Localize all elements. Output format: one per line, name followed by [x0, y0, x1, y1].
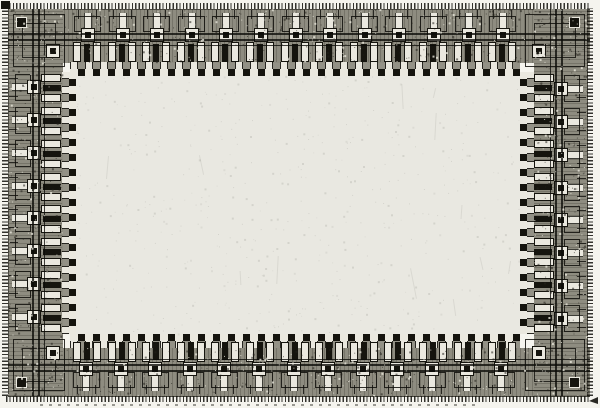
gate-bar [499, 44, 505, 62]
inner-comb-left [62, 72, 76, 334]
bus-line [555, 9, 557, 396]
io-cell [534, 235, 586, 269]
wire [304, 10, 305, 19]
io-cell [347, 10, 381, 62]
io-cell [485, 342, 519, 394]
io-cell [534, 301, 586, 335]
wire [493, 10, 494, 19]
io-cell [534, 104, 586, 138]
wire [577, 178, 586, 179]
contact-bar [534, 107, 554, 115]
wire [9, 209, 18, 210]
io-cell [312, 10, 346, 62]
bus-line [561, 9, 563, 396]
wire [373, 10, 374, 19]
contact-bar [534, 304, 554, 312]
gate-bar [153, 44, 159, 62]
contact-bar [534, 324, 554, 332]
bus-line [38, 9, 40, 396]
contact-block [569, 17, 580, 28]
io-cell [208, 342, 242, 394]
wire [9, 260, 18, 261]
gate-bar [257, 44, 263, 62]
bond-pad-core [536, 48, 542, 54]
metal-bars [70, 62, 520, 69]
bus-line [44, 9, 45, 396]
contact-bar [534, 140, 554, 148]
contact-bar [534, 225, 554, 233]
gate-bar [361, 342, 367, 360]
wire [407, 10, 408, 19]
wire [577, 309, 586, 310]
io-cell [416, 10, 450, 62]
wire [215, 385, 216, 394]
wire [338, 10, 339, 19]
wire [95, 385, 96, 394]
io-cell [70, 10, 104, 62]
bond-pad [46, 44, 60, 58]
io-cell [243, 342, 277, 394]
wire [216, 10, 217, 19]
wire [234, 10, 235, 19]
wire [577, 276, 586, 277]
wire [268, 385, 269, 394]
wire [9, 129, 18, 130]
gate-bar [119, 44, 125, 62]
io-cell [9, 202, 61, 236]
wire [181, 385, 182, 394]
gate-bar [430, 44, 436, 62]
wire [388, 385, 389, 394]
gate-bar [119, 342, 125, 360]
io-cell [9, 301, 61, 335]
bus-line [550, 9, 551, 396]
gate-bar [84, 44, 90, 62]
io-cell [534, 268, 586, 302]
corner-dark-mark [1, 1, 10, 9]
io-cell [347, 342, 381, 394]
wire [9, 162, 18, 163]
wire [9, 242, 18, 243]
wire [577, 130, 586, 131]
wire [458, 385, 459, 394]
io-cell [70, 342, 104, 394]
bus-line [8, 364, 590, 366]
contact-bar [534, 238, 554, 246]
contact-block [16, 377, 27, 388]
gate-bar [43, 151, 61, 157]
io-cell [174, 10, 208, 62]
io-cell [534, 71, 586, 105]
io-cell [9, 71, 61, 105]
wire [164, 385, 165, 394]
edge-tick-fringe-right [587, 8, 593, 396]
contact-bar [534, 193, 554, 201]
io-cell [243, 10, 277, 62]
wire [459, 10, 460, 19]
io-cell [105, 10, 139, 62]
print-artifact-line [40, 404, 480, 406]
wire [269, 10, 270, 19]
wire [303, 385, 304, 394]
wire [9, 195, 18, 196]
gate-bar [395, 44, 401, 62]
wire [577, 112, 586, 113]
contact-blocks [520, 72, 527, 334]
wire [389, 10, 390, 19]
contact-block [569, 377, 580, 388]
metal-bars [62, 72, 69, 334]
wire [577, 243, 586, 244]
contact-bar [534, 291, 554, 299]
gate-bar [465, 44, 471, 62]
wire [182, 10, 183, 19]
wire [78, 10, 79, 19]
wire [9, 96, 18, 97]
wire [9, 227, 18, 228]
wire [9, 326, 18, 327]
die-core-area [76, 76, 520, 334]
gate-bar [222, 342, 228, 360]
io-cell [485, 10, 519, 62]
bond-pad [532, 346, 546, 360]
wire [9, 293, 18, 294]
wire [9, 275, 18, 276]
contact-block [16, 17, 27, 28]
wire [9, 78, 18, 79]
wire [441, 385, 442, 394]
edge-tick-fringe-top [6, 3, 590, 9]
gate-bar [43, 184, 61, 190]
io-cell [9, 170, 61, 204]
gate-bar [222, 44, 228, 62]
io-cell [9, 104, 61, 138]
wire [233, 385, 234, 394]
wire [319, 385, 320, 394]
gate-bar [465, 342, 471, 360]
gate-bar [43, 282, 61, 288]
io-cell [174, 342, 208, 394]
io-cell [381, 10, 415, 62]
inner-comb-right [520, 72, 534, 334]
die-photomicrograph [0, 0, 600, 408]
wire [492, 385, 493, 394]
gate-bar [430, 342, 436, 360]
io-cell [278, 10, 312, 62]
io-cell [139, 10, 173, 62]
gate-bar [292, 44, 298, 62]
io-cell [534, 137, 586, 171]
wire [250, 385, 251, 394]
wire [9, 144, 18, 145]
gate-bar [326, 44, 332, 62]
gate-bar [257, 342, 263, 360]
edge-tick-fringe-left [2, 8, 8, 396]
bond-pad [532, 44, 546, 58]
io-cell [451, 342, 485, 394]
wire [577, 145, 586, 146]
wire [577, 228, 586, 229]
gate-bar [188, 44, 194, 62]
wire [577, 210, 586, 211]
wire [577, 196, 586, 197]
gate-bar [395, 342, 401, 360]
bus-line [32, 9, 34, 396]
metal-bars [527, 72, 534, 334]
wire [112, 385, 113, 394]
wire [165, 10, 166, 19]
io-cell [9, 137, 61, 171]
wire [199, 385, 200, 394]
wire [577, 163, 586, 164]
contact-bar [534, 160, 554, 168]
wire [251, 10, 252, 19]
wire [577, 79, 586, 80]
gate-bar [43, 249, 61, 255]
wire [9, 308, 18, 309]
wire [423, 385, 424, 394]
io-cell [139, 342, 173, 394]
gate-bar [153, 342, 159, 360]
wire [113, 10, 114, 19]
bus-line [8, 45, 590, 46]
wire [320, 10, 321, 19]
io-cell [208, 10, 242, 62]
gate-bar [43, 118, 61, 124]
io-cell [381, 342, 415, 394]
gate-bar [84, 342, 90, 360]
io-cell [416, 342, 450, 394]
contact-bar [534, 94, 554, 102]
bond-pad-core [536, 350, 542, 356]
inner-comb-top [70, 62, 520, 76]
bus-line [8, 33, 590, 35]
wire [372, 385, 373, 394]
gate-bar [43, 216, 61, 222]
io-cell [451, 10, 485, 62]
wire [476, 385, 477, 394]
wire [147, 10, 148, 19]
wire [577, 97, 586, 98]
contact-blocks [70, 69, 520, 76]
contact-bar [534, 173, 554, 181]
wire [406, 385, 407, 394]
contact-blocks [69, 72, 76, 334]
wire [286, 10, 287, 19]
wire [424, 10, 425, 19]
wire [355, 10, 356, 19]
io-cell [278, 342, 312, 394]
bond-pad-core [50, 350, 56, 356]
contact-bar [534, 127, 554, 135]
io-cell [534, 170, 586, 204]
gate-bar [499, 342, 505, 360]
wire [9, 177, 18, 178]
contact-bar [534, 205, 554, 213]
wire [130, 385, 131, 394]
wire [96, 10, 97, 19]
io-cell [312, 342, 346, 394]
wire [354, 385, 355, 394]
contact-blocks [70, 334, 520, 341]
wire [511, 10, 512, 19]
io-cell [9, 235, 61, 269]
contact-bar [534, 258, 554, 266]
wire [285, 385, 286, 394]
bond-pad-core [50, 48, 56, 54]
io-cell [105, 342, 139, 394]
wire [577, 261, 586, 262]
gate-bar [43, 315, 61, 321]
wire [577, 327, 586, 328]
wire [442, 10, 443, 19]
wire [337, 385, 338, 394]
io-cell [9, 268, 61, 302]
edge-tick-fringe-bottom [6, 396, 590, 402]
wire [131, 10, 132, 19]
bus-line [8, 370, 590, 372]
corner-arrow-mark [589, 397, 598, 404]
io-cell [534, 202, 586, 236]
bus-line [8, 39, 590, 41]
wire [477, 10, 478, 19]
bus-line [8, 359, 590, 360]
wire [510, 385, 511, 394]
wire [9, 111, 18, 112]
gate-bar [292, 342, 298, 360]
gate-bar [188, 342, 194, 360]
gate-bar [43, 85, 61, 91]
wire [200, 10, 201, 19]
wire [77, 385, 78, 394]
wire [577, 294, 586, 295]
contact-bar [534, 74, 554, 82]
contact-bar [534, 271, 554, 279]
gate-bar [361, 44, 367, 62]
gate-bar [326, 342, 332, 360]
wire [146, 385, 147, 394]
bond-pad [46, 346, 60, 360]
